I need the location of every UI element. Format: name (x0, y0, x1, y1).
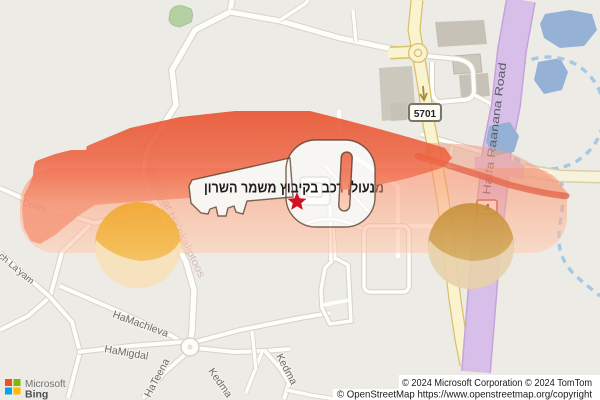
svg-text:5701: 5701 (414, 109, 437, 120)
svg-text:© OpenStreetMap https://www.op: © OpenStreetMap https://www.openstreetma… (337, 389, 592, 400)
svg-text:© 2024 Microsoft Corporation ©: © 2024 Microsoft Corporation © 2024 TomT… (402, 377, 592, 389)
svg-text:Bing: Bing (25, 389, 48, 400)
